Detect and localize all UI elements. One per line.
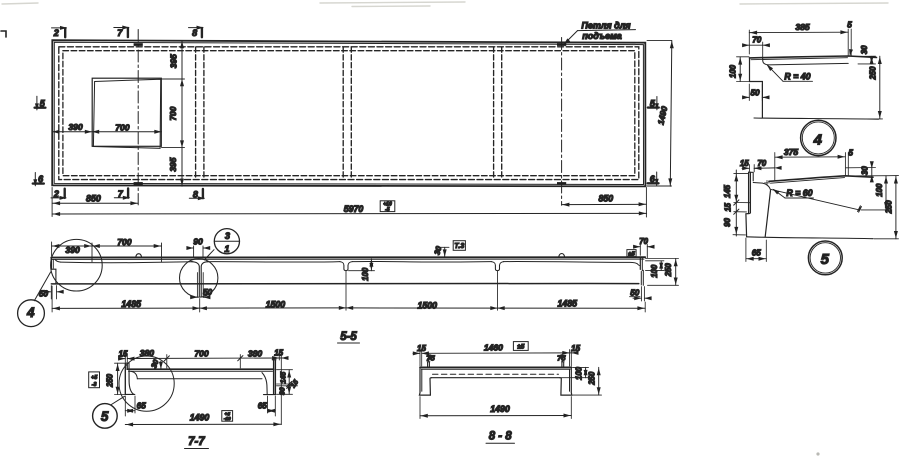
svg-text:±5: ±5 — [628, 251, 635, 257]
svg-text:380: 380 — [248, 348, 263, 358]
svg-text:15: 15 — [119, 349, 128, 358]
svg-text:250: 250 — [885, 200, 894, 215]
svg-text:R = 60: R = 60 — [786, 188, 812, 198]
svg-text:5: 5 — [848, 148, 853, 157]
svg-text:-3: -3 — [92, 382, 97, 388]
svg-text:250: 250 — [868, 66, 877, 81]
svg-text:395: 395 — [168, 157, 178, 171]
svg-text:5-5: 5-5 — [340, 331, 357, 343]
svg-text:700: 700 — [194, 348, 209, 358]
svg-text:90: 90 — [280, 387, 287, 395]
svg-text:850: 850 — [86, 194, 101, 204]
svg-text:1: 1 — [224, 244, 229, 254]
svg-text:70: 70 — [757, 159, 766, 168]
svg-text:850: 850 — [598, 194, 613, 204]
svg-text:100: 100 — [650, 264, 659, 278]
svg-text:5: 5 — [101, 409, 109, 424]
svg-text:5: 5 — [847, 21, 852, 30]
svg-text:30: 30 — [860, 45, 869, 54]
svg-text:15: 15 — [571, 344, 580, 353]
svg-text:100: 100 — [875, 183, 884, 197]
svg-text:50: 50 — [203, 288, 213, 297]
svg-text:1490: 1490 — [190, 413, 210, 423]
svg-text:390: 390 — [68, 122, 83, 132]
svg-text:250: 250 — [664, 263, 673, 278]
svg-text:385: 385 — [795, 22, 810, 32]
svg-text:700: 700 — [117, 237, 132, 247]
svg-text:1490: 1490 — [490, 404, 510, 414]
svg-text:R = 40: R = 40 — [784, 72, 810, 82]
svg-text:15: 15 — [274, 348, 283, 357]
svg-text:15: 15 — [724, 202, 733, 211]
svg-text:75: 75 — [426, 353, 435, 362]
svg-text:145: 145 — [723, 184, 732, 198]
svg-text:подъема: подъема — [582, 31, 622, 41]
svg-text:100: 100 — [729, 64, 738, 78]
svg-text:1500: 1500 — [266, 299, 286, 309]
svg-text:50: 50 — [39, 290, 49, 299]
svg-text:3: 3 — [225, 231, 230, 241]
svg-text:50: 50 — [750, 88, 760, 97]
svg-text:2: 2 — [53, 28, 59, 38]
svg-text:+5: +5 — [91, 375, 98, 381]
svg-text:7: 7 — [117, 28, 123, 38]
svg-text:65: 65 — [137, 402, 147, 411]
svg-text:250: 250 — [105, 373, 114, 388]
svg-text:8: 8 — [193, 189, 198, 199]
svg-text:145: 145 — [281, 372, 288, 384]
svg-text:5: 5 — [821, 251, 830, 268]
svg-text:250: 250 — [587, 371, 596, 386]
svg-text:65: 65 — [752, 249, 762, 258]
svg-text:8: 8 — [192, 28, 197, 38]
svg-text:2: 2 — [53, 189, 59, 199]
svg-text:15: 15 — [290, 379, 300, 389]
svg-text:70: 70 — [752, 36, 762, 45]
svg-text:-10: -10 — [224, 416, 231, 422]
svg-text:75: 75 — [557, 354, 566, 363]
svg-text:-5: -5 — [385, 207, 390, 213]
svg-text:70: 70 — [639, 237, 648, 246]
svg-text:65: 65 — [258, 402, 268, 411]
svg-text:700: 700 — [115, 122, 130, 132]
svg-text:1485: 1485 — [558, 299, 578, 309]
svg-text:390: 390 — [65, 245, 80, 255]
svg-text:4: 4 — [813, 132, 823, 149]
svg-text:30: 30 — [861, 166, 870, 175]
svg-text:15: 15 — [417, 344, 426, 353]
svg-text:Петля для: Петля для — [581, 21, 631, 31]
svg-text:±5: ±5 — [517, 343, 525, 350]
svg-text:7-7: 7-7 — [188, 436, 205, 448]
svg-text:90: 90 — [193, 237, 203, 247]
svg-text:100: 100 — [575, 366, 584, 380]
svg-text:4: 4 — [26, 305, 35, 320]
svg-text:100: 100 — [361, 267, 370, 281]
svg-text:375: 375 — [784, 147, 799, 157]
svg-text:1500: 1500 — [418, 301, 438, 311]
svg-text:1485: 1485 — [121, 299, 141, 309]
svg-text:5970: 5970 — [344, 204, 364, 214]
svg-text:395: 395 — [168, 54, 178, 68]
svg-text:90: 90 — [723, 218, 732, 227]
svg-text:30: 30 — [433, 245, 444, 256]
svg-text:50: 50 — [630, 289, 640, 298]
svg-text:15: 15 — [740, 159, 749, 168]
svg-text:Т.3: Т.3 — [454, 243, 464, 250]
svg-text:700: 700 — [168, 106, 178, 120]
svg-text:8 - 8: 8 - 8 — [489, 431, 513, 443]
svg-text:1460: 1460 — [484, 342, 503, 352]
